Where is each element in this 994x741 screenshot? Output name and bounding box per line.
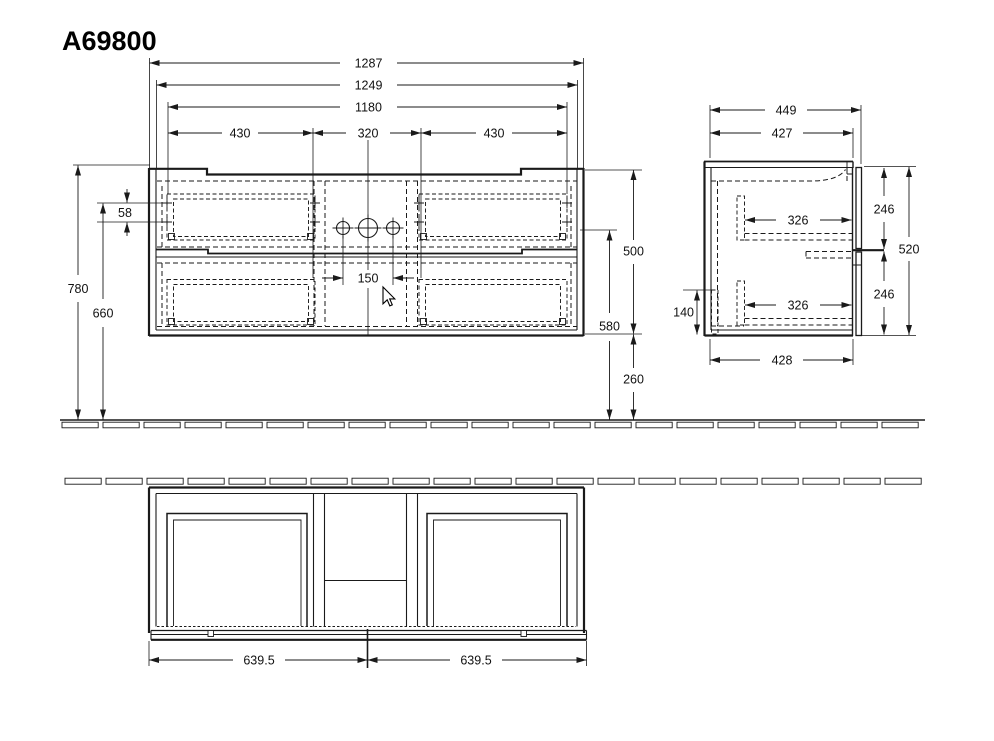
floor-plank: [188, 478, 224, 484]
floor-plank: [721, 478, 757, 484]
floor-plank: [800, 422, 836, 428]
dim-mount-hole-offset: 58: [118, 206, 132, 220]
floor-hatch-lower: [65, 478, 921, 484]
front-cabinet-outline: [149, 168, 584, 336]
front-dimensions: 1287 1249 1180 430 320 430 150 780 660 5…: [68, 57, 644, 420]
side-view: 449 427 326 326 246 246 520 140 428: [673, 104, 919, 368]
floor-plank: [639, 478, 675, 484]
technical-drawing-page: A69800: [0, 0, 994, 741]
floor-plank: [554, 422, 590, 428]
dim-drain-height: 580: [599, 320, 620, 334]
dim-half-right: 639.5: [460, 654, 491, 668]
floor-plank: [103, 422, 139, 428]
dim-front-total-width: 1287: [355, 57, 383, 71]
floor-plank: [475, 478, 511, 484]
plan-basin-cutouts: [167, 514, 567, 627]
mounting-hole-marks: [162, 198, 572, 227]
dim-front-drawer-right: 430: [484, 127, 505, 141]
dim-front-center-section: 320: [358, 127, 379, 141]
floor-plank: [762, 478, 798, 484]
floor-plank: [352, 478, 388, 484]
dim-depth-total: 449: [776, 104, 797, 118]
dim-drawer-inner-bottom: 326: [788, 299, 809, 313]
dim-service-gap: 140: [673, 306, 694, 320]
dim-depth-top: 427: [772, 127, 793, 141]
floor-plank: [270, 478, 306, 484]
dim-half-left: 639.5: [243, 654, 274, 668]
dim-floor-clearance: 260: [623, 373, 644, 387]
dim-front-upper: 246: [874, 203, 895, 217]
floor-plank: [62, 422, 98, 428]
floor-plank: [431, 422, 467, 428]
dim-carcass-height: 500: [623, 245, 644, 259]
floor-plank: [393, 478, 429, 484]
vanity-dimension-drawing: A69800: [0, 0, 994, 741]
dim-front-inner-width: 1249: [355, 79, 383, 93]
floor-plank: [472, 422, 508, 428]
floor-plank: [841, 422, 877, 428]
dim-front-lower: 246: [874, 288, 895, 302]
floor-plank: [595, 422, 631, 428]
floor-plank: [759, 422, 795, 428]
floor-plank: [390, 422, 426, 428]
floor-plank: [677, 422, 713, 428]
floor-plank: [349, 422, 385, 428]
dim-side-carcass-height: 520: [899, 243, 920, 257]
floor-plank: [185, 422, 221, 428]
floor-plank: [308, 422, 344, 428]
floor-plank: [267, 422, 303, 428]
side-hidden-lines: [711, 168, 852, 334]
floor-plank: [718, 422, 754, 428]
floor-plank: [882, 422, 918, 428]
plan-cabinet-outline: [149, 488, 587, 640]
floor-plank: [311, 478, 347, 484]
floor-plank: [636, 422, 672, 428]
floor-plank: [147, 478, 183, 484]
floor-plank: [513, 422, 549, 428]
drawing-title: A69800: [62, 26, 157, 56]
front-drawer-boxes: [167, 194, 567, 325]
floor-plank: [65, 478, 101, 484]
dim-faucet-holes: 150: [358, 272, 379, 286]
floor-plank: [803, 478, 839, 484]
floor-plank: [226, 422, 262, 428]
front-view: 1287 1249 1180 430 320 430 150 780 660 5…: [68, 57, 644, 420]
floor-plank: [229, 478, 265, 484]
floor-plank: [844, 478, 880, 484]
floor-plank: [557, 478, 593, 484]
plan-view: 639.5 639.5: [149, 488, 587, 669]
mouse-cursor-icon: [383, 287, 395, 306]
floor-plank: [106, 478, 142, 484]
dim-drawer-inner-top: 326: [788, 214, 809, 228]
floor-plank: [598, 478, 634, 484]
dim-front-drawer-left: 430: [230, 127, 251, 141]
floor-plank: [680, 478, 716, 484]
floor-plank: [885, 478, 921, 484]
floor-hatch-upper: [60, 420, 925, 428]
floor-plank: [516, 478, 552, 484]
floor-plank: [434, 478, 470, 484]
dim-height-top: 780: [68, 282, 89, 296]
dim-depth-bottom: 428: [772, 354, 793, 368]
dim-front-carcass-width: 1180: [355, 101, 382, 115]
floor-plank: [144, 422, 180, 428]
dim-height-mount: 660: [93, 307, 114, 321]
